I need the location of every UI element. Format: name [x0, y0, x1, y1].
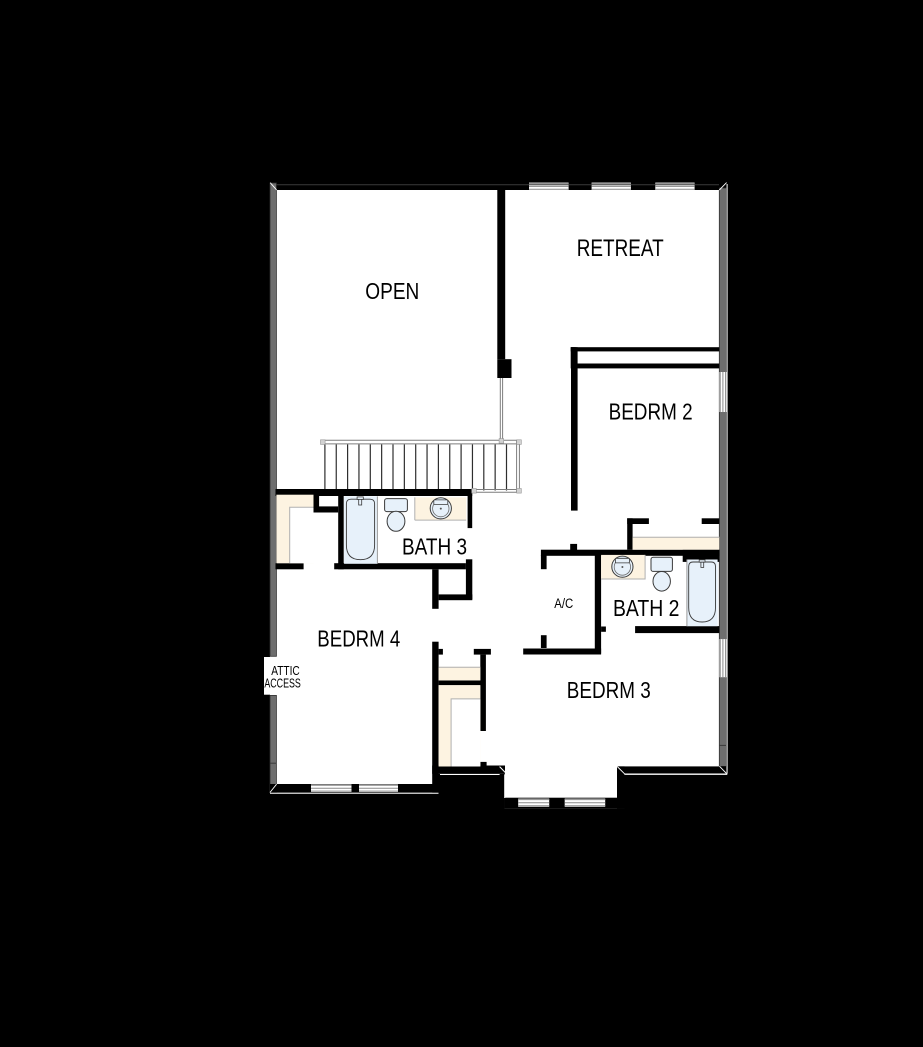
svg-text:BEDRM 2: BEDRM 2 — [609, 399, 693, 425]
svg-text:BEDRM 3: BEDRM 3 — [567, 677, 651, 703]
svg-text:A/C: A/C — [554, 596, 573, 611]
svg-text:RETREAT: RETREAT — [577, 235, 664, 262]
svg-text:BATH 2: BATH 2 — [613, 595, 680, 621]
svg-text:BATH 3: BATH 3 — [402, 534, 467, 560]
svg-text:BEDRM 4: BEDRM 4 — [317, 626, 400, 652]
svg-text:OPEN: OPEN — [365, 278, 419, 304]
svg-text:ACCESS: ACCESS — [264, 676, 301, 691]
